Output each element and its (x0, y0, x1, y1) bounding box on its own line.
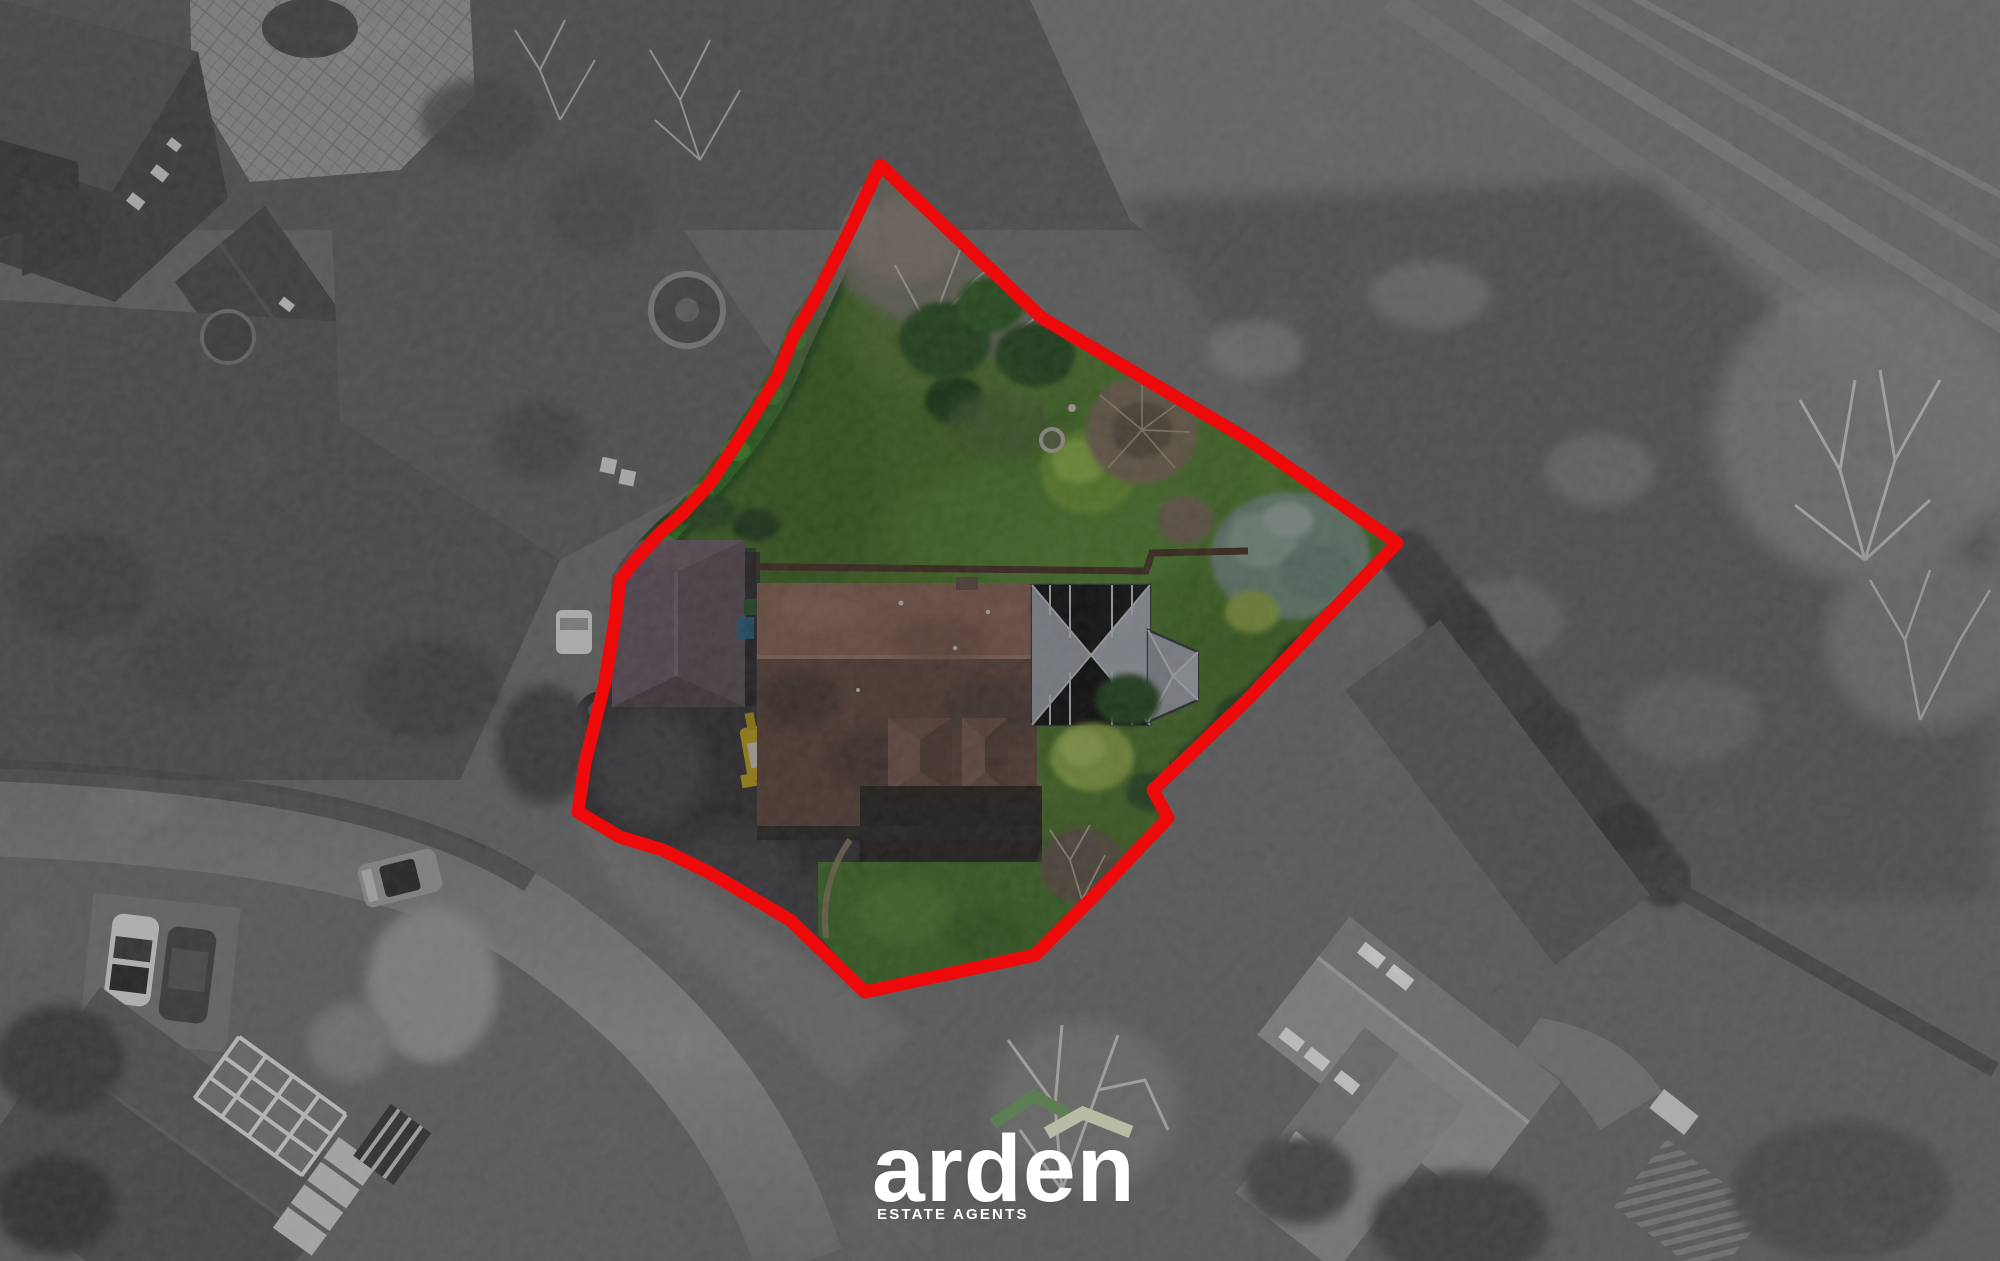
aerial-photo: arden ESTATE AGENTS (0, 0, 2000, 1261)
aerial-scene (0, 0, 2000, 1261)
mottle-overlay (0, 0, 2000, 1261)
